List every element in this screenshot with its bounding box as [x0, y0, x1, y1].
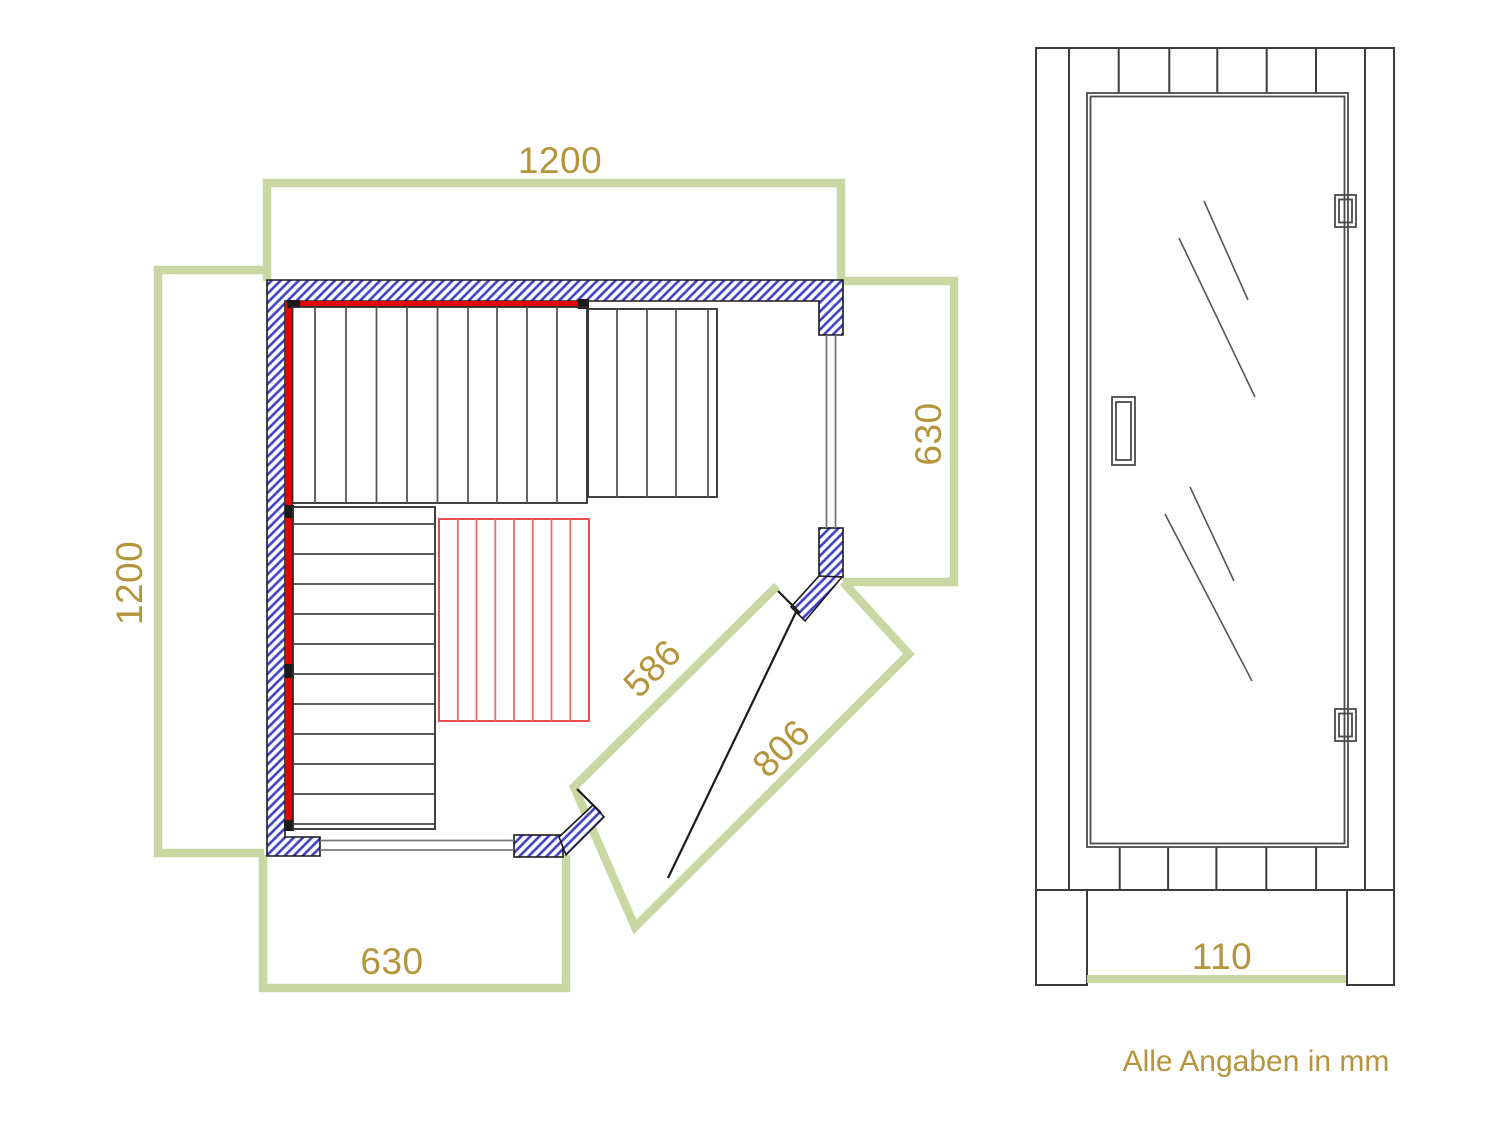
- svg-text:1200: 1200: [109, 541, 150, 625]
- svg-text:1200: 1200: [518, 140, 602, 181]
- svg-text:Alle Angaben in mm: Alle Angaben in mm: [1123, 1045, 1390, 1078]
- svg-text:630: 630: [360, 941, 423, 982]
- svg-text:806: 806: [745, 712, 819, 786]
- svg-text:586: 586: [616, 632, 690, 706]
- svg-text:110: 110: [1192, 936, 1253, 977]
- svg-text:630: 630: [908, 402, 949, 465]
